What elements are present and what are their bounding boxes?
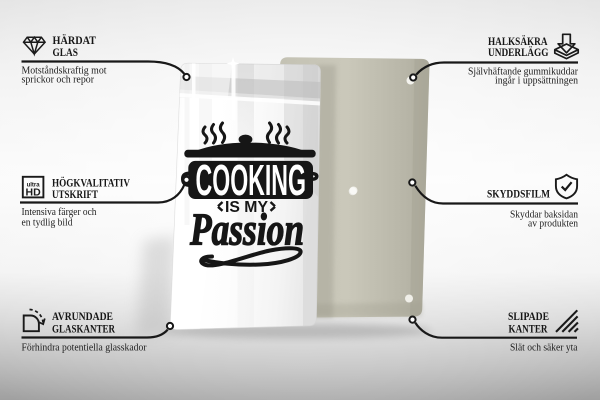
svg-text:Slät och säker yta: Slät och säker yta [510, 342, 578, 354]
svg-text:av produkten: av produkten [528, 217, 578, 229]
svg-text:COOKING: COOKING [196, 157, 307, 205]
svg-text:GLAS: GLAS [53, 47, 79, 59]
svg-text:Förhindra potentiella glasskad: Förhindra potentiella glasskador [22, 342, 147, 354]
svg-text:AVRUNDADE: AVRUNDADE [52, 311, 113, 323]
svg-text:HALKSÄKRA: HALKSÄKRA [488, 34, 548, 48]
svg-text:GLASKANTER: GLASKANTER [52, 323, 116, 335]
svg-text:ingår i uppsättningen: ingår i uppsättningen [495, 74, 578, 86]
svg-text:UNDERLÄGG: UNDERLÄGG [488, 45, 549, 59]
svg-text:KANTER: KANTER [509, 323, 549, 335]
svg-text:HD: HD [26, 187, 42, 199]
svg-text:SKYDDSFILM: SKYDDSFILM [487, 188, 550, 200]
svg-text:en tydlig bild: en tydlig bild [22, 216, 73, 228]
svg-text:UTSKRIFT: UTSKRIFT [52, 189, 98, 201]
svg-text:SLIPADE: SLIPADE [508, 311, 549, 323]
svg-text:HÄRDAT: HÄRDAT [53, 33, 97, 47]
svg-text:sprickor och repor: sprickor och repor [22, 73, 95, 85]
svg-text:HÖGKVALITATIV: HÖGKVALITATIV [52, 176, 131, 190]
